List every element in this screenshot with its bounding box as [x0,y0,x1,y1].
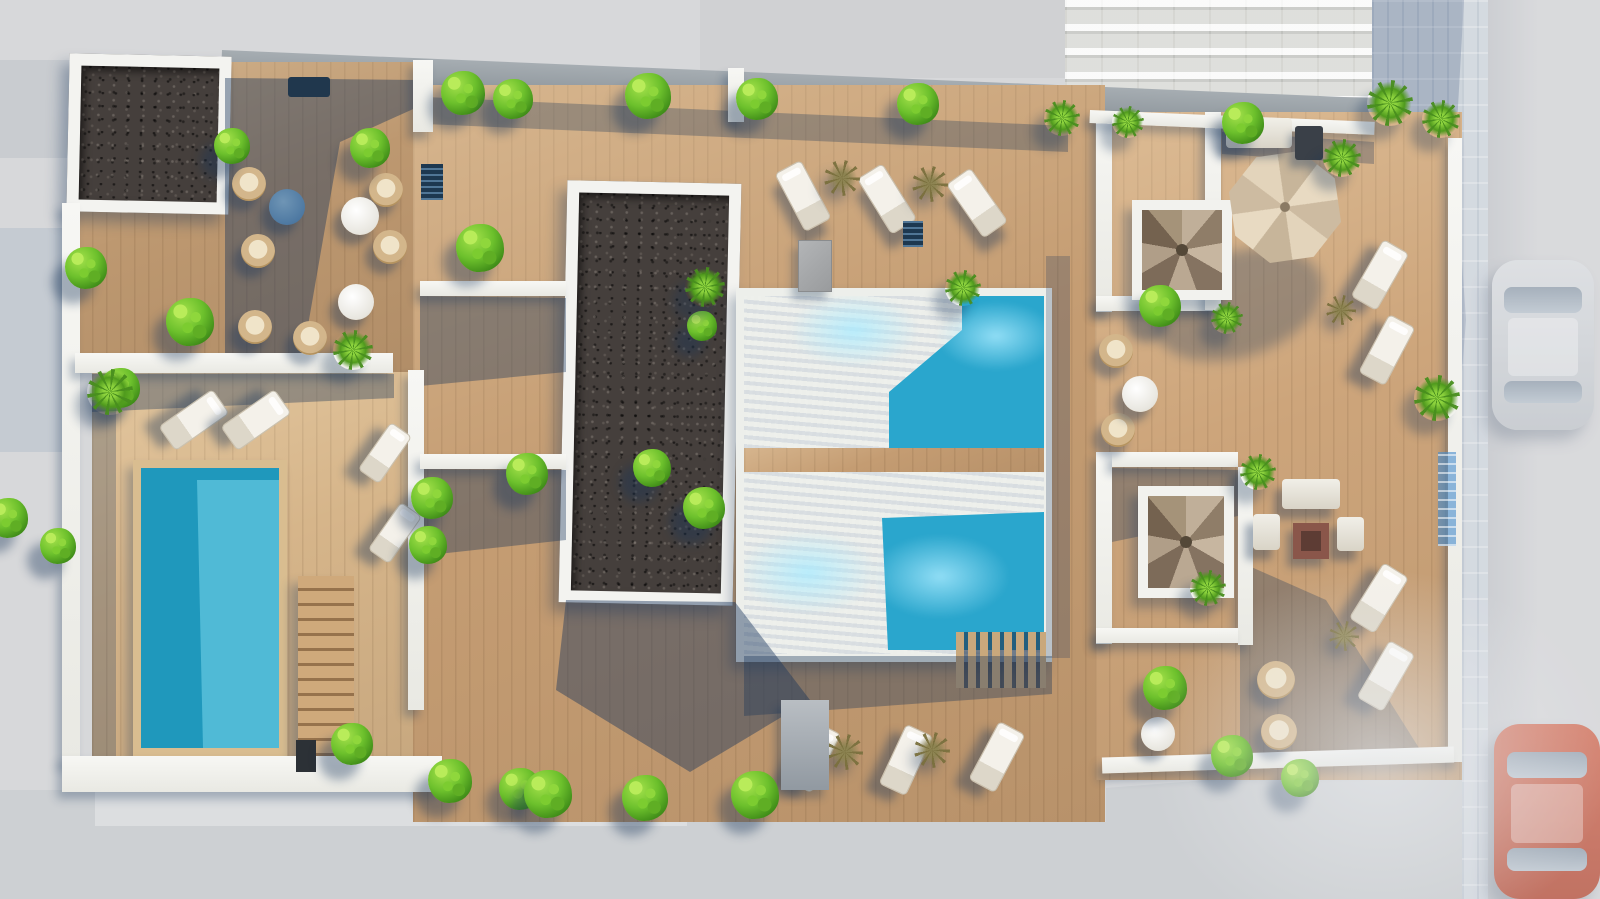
atmosphere-layer [0,0,1600,899]
sun-haze [1462,0,1600,899]
rooftop-terrace-render [0,0,1600,899]
